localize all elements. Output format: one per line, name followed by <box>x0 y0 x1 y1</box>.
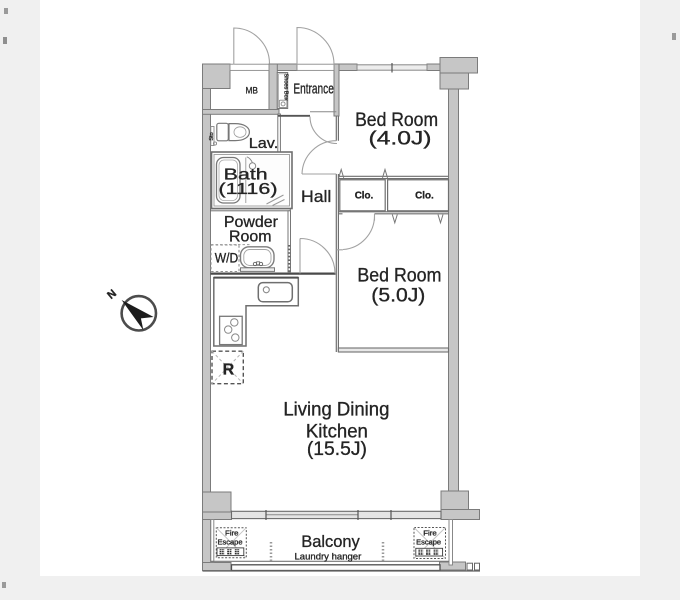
svg-text:Escape: Escape <box>416 539 441 546</box>
svg-text:MB: MB <box>245 86 258 97</box>
svg-text:W/D: W/D <box>215 250 239 266</box>
svg-text:Fire: Fire <box>225 531 239 538</box>
svg-text:Laundry hanger: Laundry hanger <box>295 552 362 563</box>
svg-text:Room: Room <box>229 229 272 246</box>
svg-text:(4.0J): (4.0J) <box>369 129 432 150</box>
svg-text:(5.0J): (5.0J) <box>371 286 425 307</box>
svg-text:(15.5J): (15.5J) <box>307 439 367 460</box>
svg-text:Living Dining: Living Dining <box>283 400 389 421</box>
svg-text:Hall: Hall <box>301 188 331 206</box>
svg-text:Escape: Escape <box>218 539 243 546</box>
svg-text:Bed Room: Bed Room <box>357 264 441 286</box>
svg-text:Clo.: Clo. <box>415 191 434 202</box>
svg-text:Sto: Sto <box>209 132 215 140</box>
svg-text:Entrance: Entrance <box>293 80 334 97</box>
svg-text:Fire: Fire <box>423 531 437 538</box>
svg-text:(1116): (1116) <box>219 181 278 198</box>
svg-text:Shoes Box: Shoes Box <box>282 74 288 101</box>
svg-text:Clo.: Clo. <box>355 191 374 202</box>
svg-text:Balcony: Balcony <box>301 532 360 551</box>
svg-text:Lav.: Lav. <box>249 135 279 152</box>
svg-text:R: R <box>223 362 235 379</box>
